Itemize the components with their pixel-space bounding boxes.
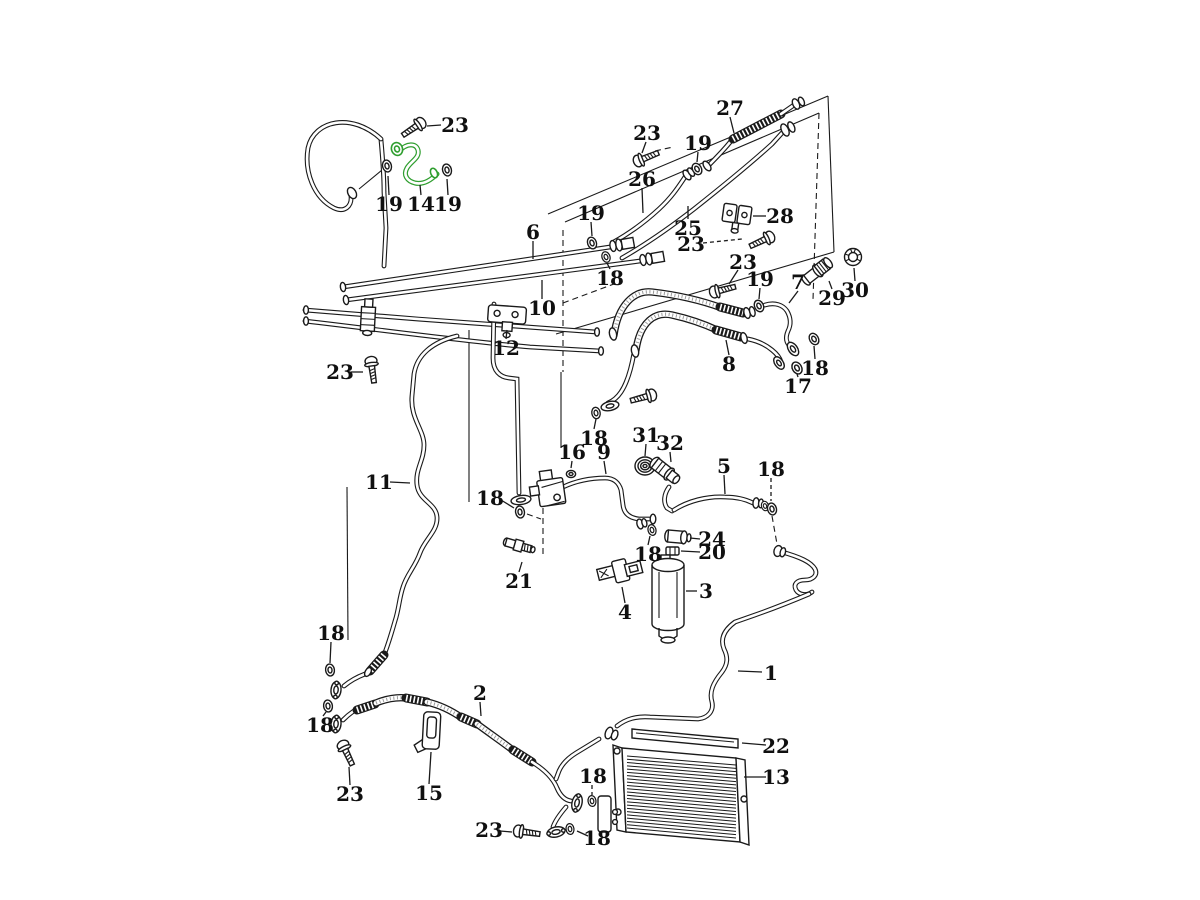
part-label-23-22[interactable]: 23 [729,250,757,274]
part-label-18-47[interactable]: 18 [583,826,611,850]
seal-19-right [441,163,453,177]
part-label-2-43[interactable]: 2 [473,681,487,705]
part-label-18-46[interactable]: 18 [579,764,607,788]
part-label-1-48[interactable]: 1 [764,661,778,685]
part-labels: 2319141927231926625281918231012238171819… [306,96,869,850]
part-label-18-12[interactable]: 18 [596,266,624,290]
condenser-13 [598,729,749,845]
part-label-18-19[interactable]: 18 [801,356,829,380]
pipe-foot [510,494,531,506]
part-label-28-10[interactable]: 28 [766,204,794,228]
part-label-18-37[interactable]: 18 [634,542,662,566]
part-label-19-1[interactable]: 19 [375,192,403,216]
cap-30 [845,249,862,266]
part-label-11-26[interactable]: 11 [365,470,393,494]
flange-2-end [570,793,584,813]
part-label-13-50[interactable]: 13 [762,765,790,789]
part-label-15-44[interactable]: 15 [415,781,443,805]
part-label-21-40[interactable]: 21 [505,569,533,593]
seal-18-right [807,332,821,347]
part-label-10-14[interactable]: 10 [528,296,556,320]
leader-line-1 [738,671,762,672]
part-label-18-41[interactable]: 18 [306,713,334,737]
seal-18-elbow2 [323,699,333,712]
part-label-8-17[interactable]: 8 [722,352,736,376]
hose-clamp [346,186,359,200]
bolt-23-upper [631,146,661,169]
part-label-3-38[interactable]: 3 [699,579,713,603]
part-label-4-39[interactable]: 4 [618,600,632,624]
bolt-23-center [708,280,737,300]
union-pipe10 [639,250,665,266]
seal-18-hose8 [591,407,601,420]
highlighted-hose-14 [390,141,439,183]
part-label-7-21[interactable]: 7 [791,270,805,294]
part-label-23-5[interactable]: 23 [633,121,661,145]
leader-line-18 [330,642,331,663]
nut-16 [566,470,575,477]
fitting-24 [664,529,691,544]
clamp-20 [666,547,679,555]
seal-18-cond2 [565,823,574,835]
leader-line-23 [427,125,441,126]
seal-18-mid [600,251,611,264]
condenser-bracket-22 [632,729,738,748]
flange-8 [772,355,787,371]
part-label-27-4[interactable]: 27 [716,96,744,120]
seal-18-foot [515,505,526,518]
part-label-19-6[interactable]: 19 [684,131,712,155]
clamp-28 [720,203,752,235]
part-label-23-45[interactable]: 23 [475,818,503,842]
flange-hose8-bottom [600,400,619,413]
part-label-14-2[interactable]: 14 [407,192,435,216]
seal-18-elbow1 [325,663,335,676]
part-label-6-8[interactable]: 6 [526,220,540,244]
bolt-23-left [364,356,381,384]
flange-bottom [546,825,566,839]
receiver-drier-3 [652,555,684,643]
part-label-20-36[interactable]: 20 [698,540,726,564]
bolt-23-lower-left [335,738,359,768]
part-label-5-33[interactable]: 5 [717,454,731,478]
bolt-23-hose8 [629,387,658,407]
part-label-23-13[interactable]: 23 [677,232,705,256]
bolt-23-top-left [399,115,429,141]
part-label-19-11[interactable]: 19 [577,201,605,225]
parts-diagram-canvas: 2319141927231926625281918231012238171819… [0,0,1200,900]
leader-line-26 [642,188,643,213]
leader-line-15 [429,752,431,784]
part-label-12-15[interactable]: 12 [492,336,520,360]
sensor-21 [502,536,536,556]
seal-18-cond1 [587,795,596,807]
parts-diagram-page: 2319141927231926625281918231012238171819… [0,0,1200,900]
part-label-19-3[interactable]: 19 [434,192,462,216]
bolt-23-bottom [513,824,541,841]
flange-11 [330,681,341,699]
leader-line-11 [390,482,410,483]
part-label-23-16[interactable]: 23 [326,360,354,384]
part-label-18-34[interactable]: 18 [757,457,785,481]
part-label-26-7[interactable]: 26 [628,167,656,191]
leader-line-23 [703,239,742,243]
service-valve [360,299,376,336]
part-label-18-30[interactable]: 18 [580,426,608,450]
junction-block [527,469,566,508]
bolt-23-dashed [747,229,777,253]
part-label-18-25[interactable]: 18 [317,621,345,645]
part-label-23-42[interactable]: 23 [336,782,364,806]
part-label-22-49[interactable]: 22 [762,734,790,758]
part-label-23-0[interactable]: 23 [441,113,469,137]
part-label-32-32[interactable]: 32 [656,431,684,455]
part-label-18-27[interactable]: 18 [476,486,504,510]
clamp-15 [414,711,441,753]
part-label-30-24[interactable]: 30 [841,278,869,302]
seal-18-drier [647,524,657,536]
